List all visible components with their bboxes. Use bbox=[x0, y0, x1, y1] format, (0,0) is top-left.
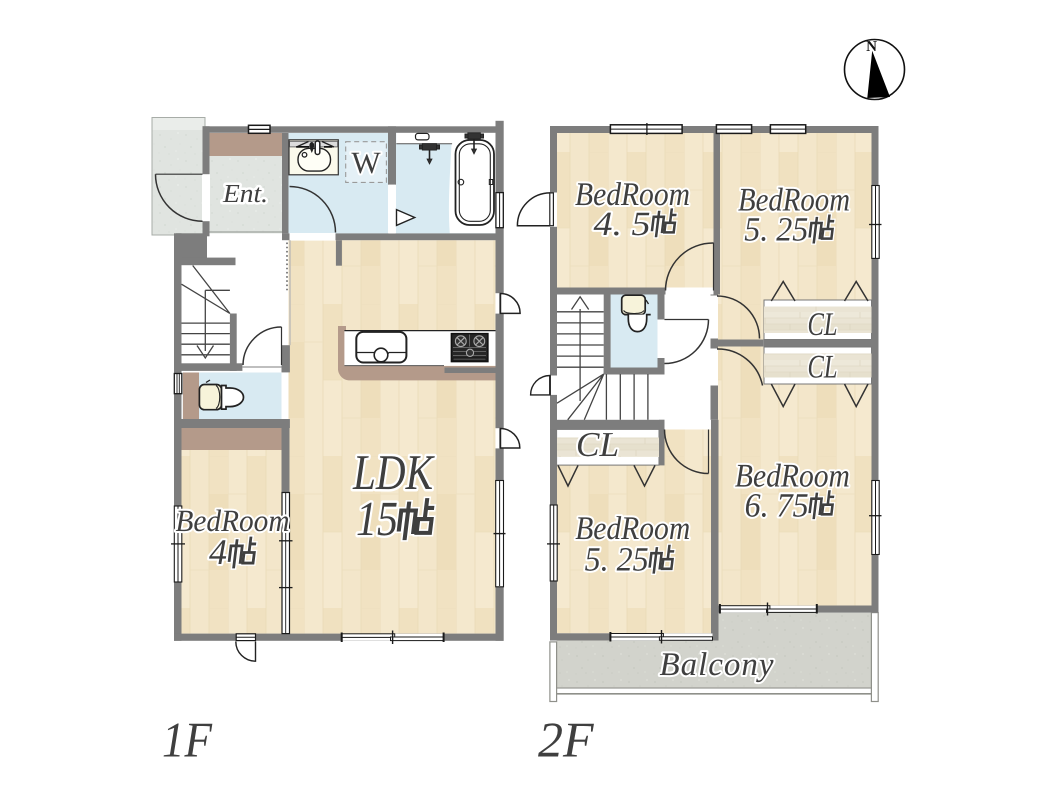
svg-text:N: N bbox=[866, 39, 877, 55]
svg-text:W: W bbox=[351, 145, 381, 180]
svg-text:5. 25: 5. 25 bbox=[744, 212, 808, 249]
svg-text:2F: 2F bbox=[538, 712, 594, 768]
svg-text:5. 25: 5. 25 bbox=[585, 542, 649, 579]
svg-text:4. 5: 4. 5 bbox=[594, 206, 651, 243]
svg-text:Balcony: Balcony bbox=[659, 647, 774, 683]
svg-text:CL: CL bbox=[576, 425, 619, 464]
svg-text:CL: CL bbox=[808, 350, 838, 386]
svg-text:15: 15 bbox=[356, 491, 398, 546]
svg-text:BedRoom: BedRoom bbox=[176, 503, 290, 538]
svg-text:6. 75: 6. 75 bbox=[745, 487, 809, 524]
svg-text:CL: CL bbox=[808, 307, 838, 343]
svg-text:Ent.: Ent. bbox=[222, 179, 268, 208]
svg-text:4: 4 bbox=[209, 532, 227, 572]
svg-text:1F: 1F bbox=[162, 712, 212, 768]
